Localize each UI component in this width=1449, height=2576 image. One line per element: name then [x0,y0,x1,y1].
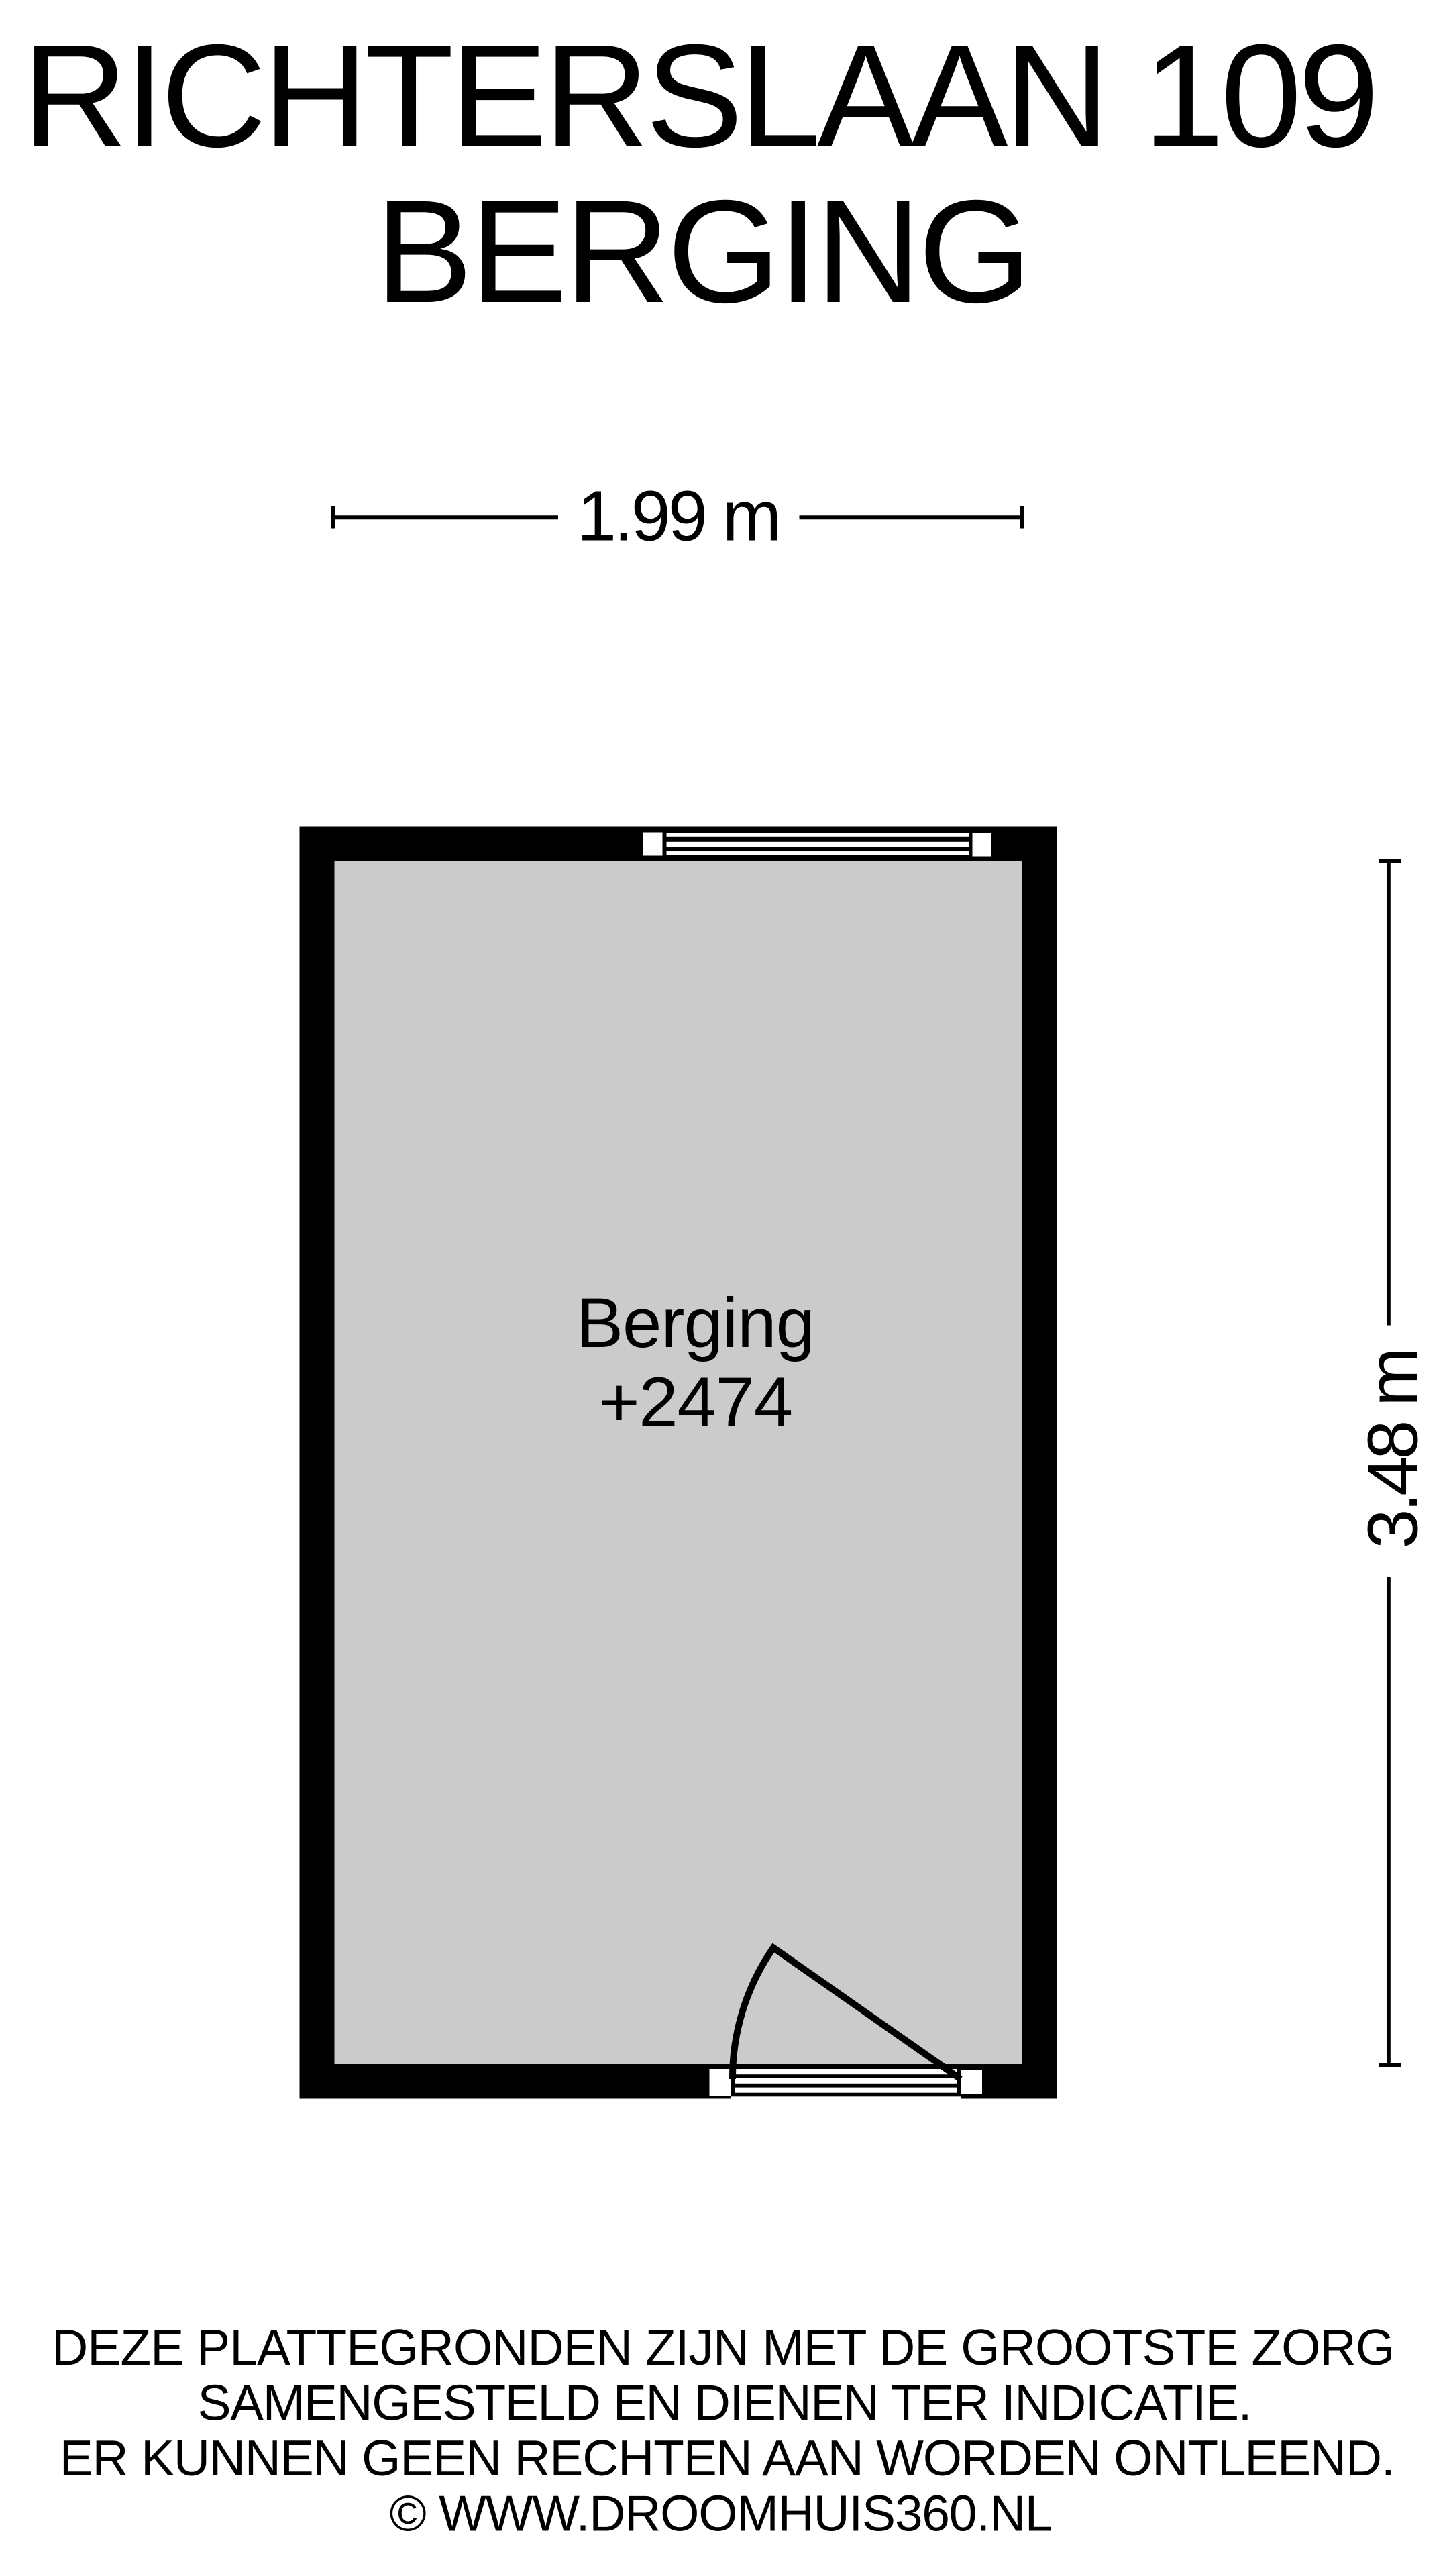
svg-text:RICHTERSLAAN 109: RICHTERSLAAN 109 [22,15,1379,178]
svg-text:DEZE PLATTEGRONDEN ZIJN MET DE: DEZE PLATTEGRONDEN ZIJN MET DE GROOTSTE … [52,2319,1395,2375]
svg-text:© WWW.DROOMHUIS360.NL: © WWW.DROOMHUIS360.NL [390,2485,1053,2542]
svg-text:BERGING: BERGING [375,170,1032,333]
svg-text:SAMENGESTELD EN DIENEN TER IND: SAMENGESTELD EN DIENEN TER INDICATIE. [198,2375,1252,2431]
svg-text:Berging: Berging [576,1284,815,1362]
svg-text:3.48 m: 3.48 m [1354,1348,1433,1549]
svg-text:1.99 m: 1.99 m [577,477,782,556]
svg-text:+2474: +2474 [598,1363,793,1442]
svg-text:ER KUNNEN GEEN RECHTEN AAN WOR: ER KUNNEN GEEN RECHTEN AAN WORDEN ONTLEE… [60,2430,1395,2486]
